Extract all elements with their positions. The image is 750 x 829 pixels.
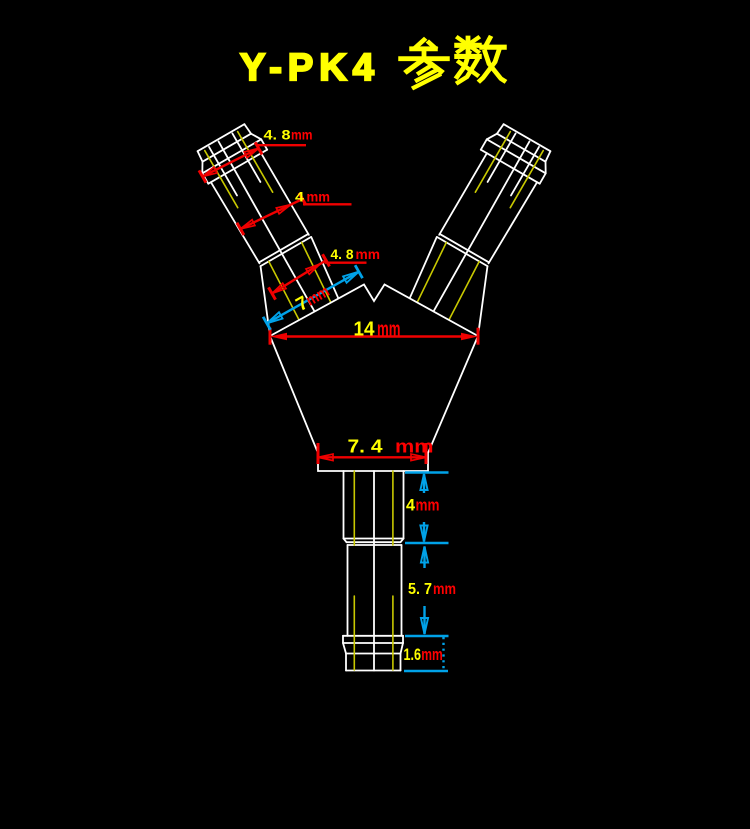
- svg-text:Y-PK4: Y-PK4: [240, 47, 380, 89]
- svg-text:4. 8mm: 4. 8mm: [331, 246, 381, 262]
- svg-text:4mm: 4mm: [295, 188, 330, 204]
- svg-text:4. 8mm: 4. 8mm: [264, 126, 313, 142]
- svg-text:14mm: 14mm: [354, 319, 401, 341]
- svg-text:4mm: 4mm: [406, 496, 440, 515]
- svg-text:1.6mm: 1.6mm: [404, 645, 443, 664]
